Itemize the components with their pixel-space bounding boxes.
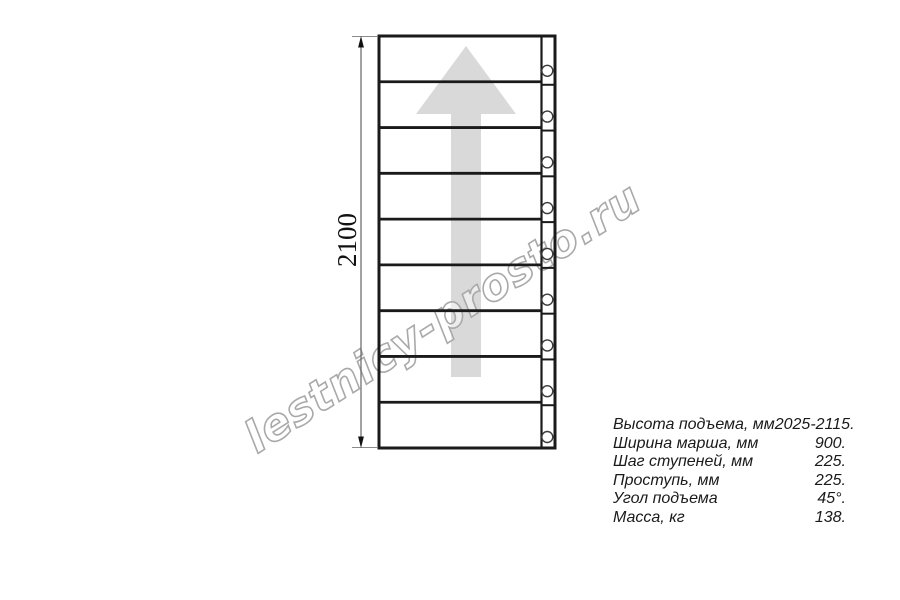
dimension-arrowhead-top-icon — [358, 36, 364, 48]
spec-value: 900. — [815, 435, 846, 454]
specs-table: Высота подъема, мм 2025-2115. Ширина мар… — [613, 416, 846, 528]
spec-row-mass: Масса, кг 138. — [613, 509, 846, 528]
bolt-hole-circle — [542, 432, 553, 443]
spec-value: 225. — [815, 472, 846, 491]
bolt-hole-circle — [542, 111, 553, 122]
bolt-hole-circle — [542, 65, 553, 76]
bolt-hole-circle — [542, 340, 553, 351]
bolt-hole-circle — [542, 248, 553, 259]
spec-value: 225. — [815, 453, 846, 472]
spec-label: Высота подъема, мм — [613, 416, 775, 435]
dimension-label: 2100 — [332, 213, 362, 267]
spec-row-width: Ширина марша, мм 900. — [613, 435, 846, 454]
spec-label: Угол подъема — [613, 490, 718, 509]
dimension-arrowhead-bottom-icon — [358, 437, 364, 449]
bolt-hole-circle — [542, 157, 553, 168]
spec-row-step-pitch: Шаг ступеней, мм 225. — [613, 453, 846, 472]
spec-row-tread: Проступь, мм 225. — [613, 472, 846, 491]
bolt-hole-circle — [542, 294, 553, 305]
spec-label: Проступь, мм — [613, 472, 719, 491]
bolt-hole-circle — [542, 203, 553, 214]
spec-label: Масса, кг — [613, 509, 685, 528]
spec-value: 2025-2115. — [775, 416, 855, 435]
spec-label: Шаг ступеней, мм — [613, 453, 753, 472]
spec-row-height: Высота подъема, мм 2025-2115. — [613, 416, 846, 435]
bolt-hole-circle — [542, 386, 553, 397]
spec-value: 45°. — [817, 490, 846, 509]
watermark-text: lestnicy-prosto.ru — [235, 173, 650, 464]
spec-row-angle: Угол подъема 45°. — [613, 490, 846, 509]
spec-label: Ширина марша, мм — [613, 435, 758, 454]
spec-value: 138. — [815, 509, 846, 528]
